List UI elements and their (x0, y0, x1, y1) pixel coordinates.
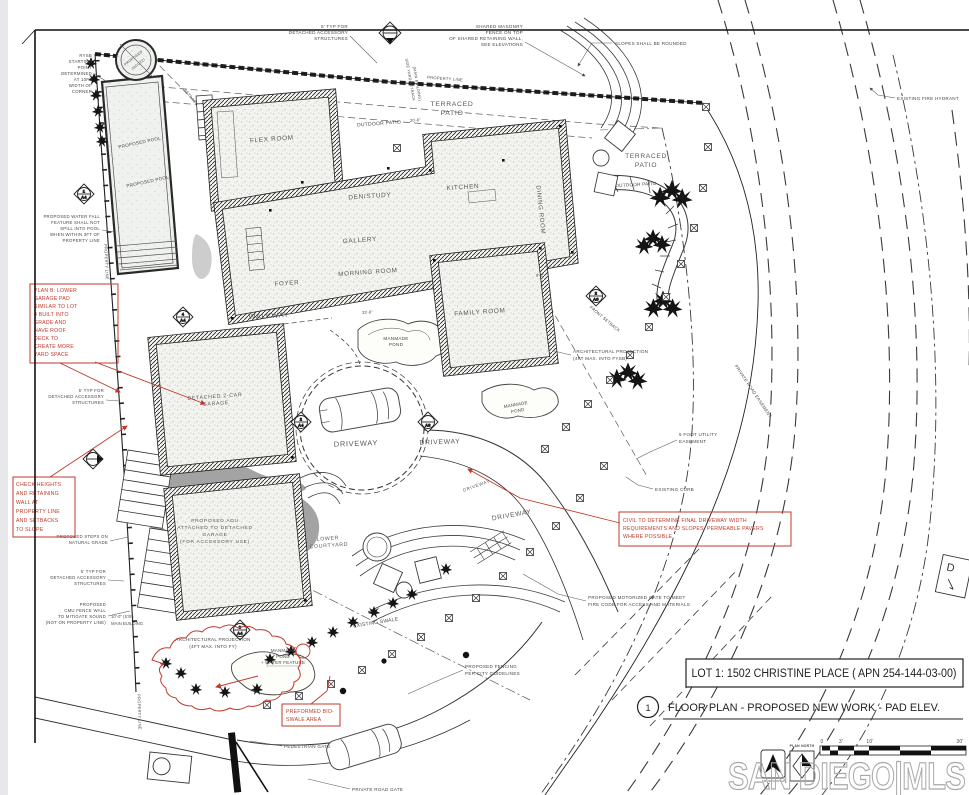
red-note-line: AND RETAINING (16, 491, 59, 497)
room-label-adu-3: GARAGE (202, 532, 227, 538)
section-marker-sheet: A4 (298, 423, 304, 428)
callout-masonry-3: OF SHARED RETAINING WALL, (449, 36, 523, 41)
red-note-line: DECK TO (34, 336, 58, 342)
section-marker-sheet: A6 (593, 297, 599, 302)
callout-rysb-2: STARTING (69, 59, 93, 64)
section-marker-sheet: A4 (180, 318, 186, 323)
callout-arch-fysb-2: (4FT MAX. INTO FYSB) (573, 356, 627, 361)
red-note-line: WHERE POSSIBLE (623, 534, 673, 540)
red-note-line: TO SLOPE (16, 527, 44, 533)
section-marker-sheet: A4 (237, 631, 243, 636)
section-marker-sheet: A3 (425, 423, 431, 428)
label-driveway-1: DRIVEWAY (334, 438, 378, 449)
scale-tick-10: 10' (866, 739, 873, 745)
callout-fire-hydrant: EXISTING FIRE HYDRANT (897, 96, 959, 101)
callout-private-road-gate: PRIVATE ROAD GATE (352, 787, 403, 792)
scale-tick-30: 30' (956, 739, 963, 745)
red-note-line: HAVE ROOF (34, 328, 66, 334)
callout-utility-2: EASEMENT (679, 439, 706, 444)
callout-steps-2: NATURAL GRADE (69, 540, 108, 545)
callout-cmu-3: TO MITIGATE SOUND (58, 614, 106, 619)
dim-main-building-2: MAIN BUILDING (111, 621, 144, 626)
label-terraced-patio-top-2: PATIO (441, 110, 464, 117)
callout-rysb-7: CORNER (72, 89, 92, 94)
callout-typ-left-3: STRUCTURES (72, 400, 104, 405)
callout-fencing-1: PROPOSED FENCING (465, 664, 517, 669)
scan-edge (0, 0, 8, 795)
label-driveway-2: DRIVEWAY (419, 438, 460, 446)
callout-rysb-3: POINT (78, 65, 93, 70)
detail-number: 1 (645, 703, 650, 713)
room-label-adu-4: (FOR ACCESSORY USE) (180, 539, 250, 545)
drawing-title: FLOOR PLAN - PROPOSED NEW WORK - PAD ELE… (668, 702, 940, 714)
callout-typ-bottom-1: 5' TYP FOR (81, 569, 106, 574)
red-note-line: CREATE MORE (34, 344, 74, 350)
callout-masonry-1: SHARED MASONRY (476, 24, 523, 29)
callout-rysb-6: WIDTH OF (69, 83, 92, 88)
label-terraced-patio-right-2: PATIO (635, 162, 657, 169)
callout-typ-bottom-3: STRUCTURES (74, 581, 106, 586)
callout-arch-fysb-1: ARCHITECTURAL PROJECTION (573, 349, 648, 354)
red-note-line: CHECK HEIGHTS (16, 482, 62, 488)
callout-existing-curb: EXISTING CURB (655, 487, 694, 492)
callout-typ-left-2: DETACHED ACCESSORY (48, 394, 104, 399)
callout-typ-top-1: 5' TYP FOR (321, 24, 348, 29)
label-pond-bottom-2: POND (276, 654, 290, 659)
callout-typ-left-1: 5' TYP FOR (79, 388, 104, 393)
callout-cmu-1: PROPOSED (80, 602, 106, 607)
callout-rysb-4: DETERMINED (61, 71, 92, 76)
callout-arch-fy-2: (4FT MAX. INTO FY) (189, 644, 237, 649)
callout-waterfall-3: SPILL INTO POOL (60, 226, 100, 231)
red-note-line: YARD SPACE (34, 352, 69, 358)
red-note-line: SWALE AREA (286, 717, 322, 723)
dim-main-building-1: 10'-0" (5'/5') (111, 614, 134, 619)
callout-cmu-2: CMU FENCE WALL (64, 608, 106, 613)
label-pond-bottom-3: + WATER FEATURE (261, 660, 305, 665)
label-terraced-patio-right-1: TERRACED (625, 153, 667, 160)
mls-watermark: SAN DIEGO|MLS (728, 756, 965, 795)
label-pond-bottom-1: MANMADE (271, 648, 295, 653)
callout-motor-gate-1: PROPOSED MOTORIZED GATE TO MEET (588, 595, 686, 600)
label-pond-top-1: MANMADE (383, 336, 408, 341)
red-note-line: SIMILAR TO LOT (34, 304, 78, 310)
room-label-adu-1: PROPOSED ADU (191, 518, 239, 524)
callout-waterfall-1: PROPOSED WATER FALL (43, 214, 100, 219)
red-note-line: 4 BUILT INTO (34, 312, 69, 318)
section-marker-sheet: A4 (81, 195, 87, 200)
callout-waterfall-4: WHEN WITHIN 3FT OF (50, 232, 100, 237)
red-note-line: CIVIL TO DETERMINE FINAL DRIVEWAY WIDTH (623, 518, 747, 524)
red-note-line: GARAGE PAD (34, 296, 70, 302)
callout-slopes: SLOPES SHALL BE ROUNDED (615, 41, 687, 46)
callout-waterfall-5: PROPERTY LINE (63, 238, 100, 243)
lot-title: LOT 1: 1502 CHRISTINE PLACE ( APN 254-14… (692, 668, 957, 680)
callout-rysb-1: RYSB (79, 53, 92, 58)
callout-waterfall-2: FEATURE SHALL NOT (51, 220, 100, 225)
room-label-adu-2: ATTACHED TO DETACHED (177, 525, 253, 531)
red-note-line: GRADE AND (34, 320, 66, 326)
scale-tick-3: 3' (839, 739, 843, 745)
red-note-line: REQUIREMENTS AND SLOPES. PERMEABLE PAVER… (623, 526, 764, 532)
plan-north-label: PLAN NORTH (790, 744, 815, 748)
callout-utility-1: 5 FOOT UTILITY (679, 432, 717, 437)
red-note-line: PROPERTY LINE (16, 509, 60, 515)
red-note-line: PLAN B: LOWER (34, 288, 77, 294)
callout-cmu-4: (NOT ON PROPERTY LINE) (46, 620, 107, 625)
site-plan-canvas: 1 A4 4 A4 2 A4 A3 3 A4 2 A6 FLEX ROOM DE… (0, 0, 969, 795)
dim-20-6: 20'-6" (410, 117, 422, 123)
callout-typ-bottom-2: DETACHED ACCESSORY (50, 575, 106, 580)
dim-33-8: 33'-8" (362, 309, 373, 315)
label-pond-top-2: POND (389, 342, 404, 347)
callout-typ-top-3: STRUCTURES (314, 36, 348, 41)
dim-9-8: 9'-8" (536, 273, 545, 278)
scale-tick-0: 0 (820, 739, 823, 745)
callout-rysb-5: AT 10FT (74, 77, 92, 82)
label-terraced-patio-top-1: TERRACED (431, 101, 474, 108)
red-note-line: PREFORMED BIO- (286, 709, 334, 715)
callout-fencing-2: PER CITY GUIDELINES (465, 671, 520, 676)
callout-masonry-4: SEE ELEVATIONS (481, 42, 523, 47)
site-plan-page: 1 A4 4 A4 2 A4 A3 3 A4 2 A6 FLEX ROOM DE… (0, 0, 969, 795)
red-note-line: AND SETBACKS (16, 518, 59, 524)
callout-pedestrian-gate: PEDESTRIAN GATE (284, 744, 331, 749)
callout-motor-gate-2: FIRE CODE FOR ACCESS AND MATERIALS (588, 602, 690, 607)
